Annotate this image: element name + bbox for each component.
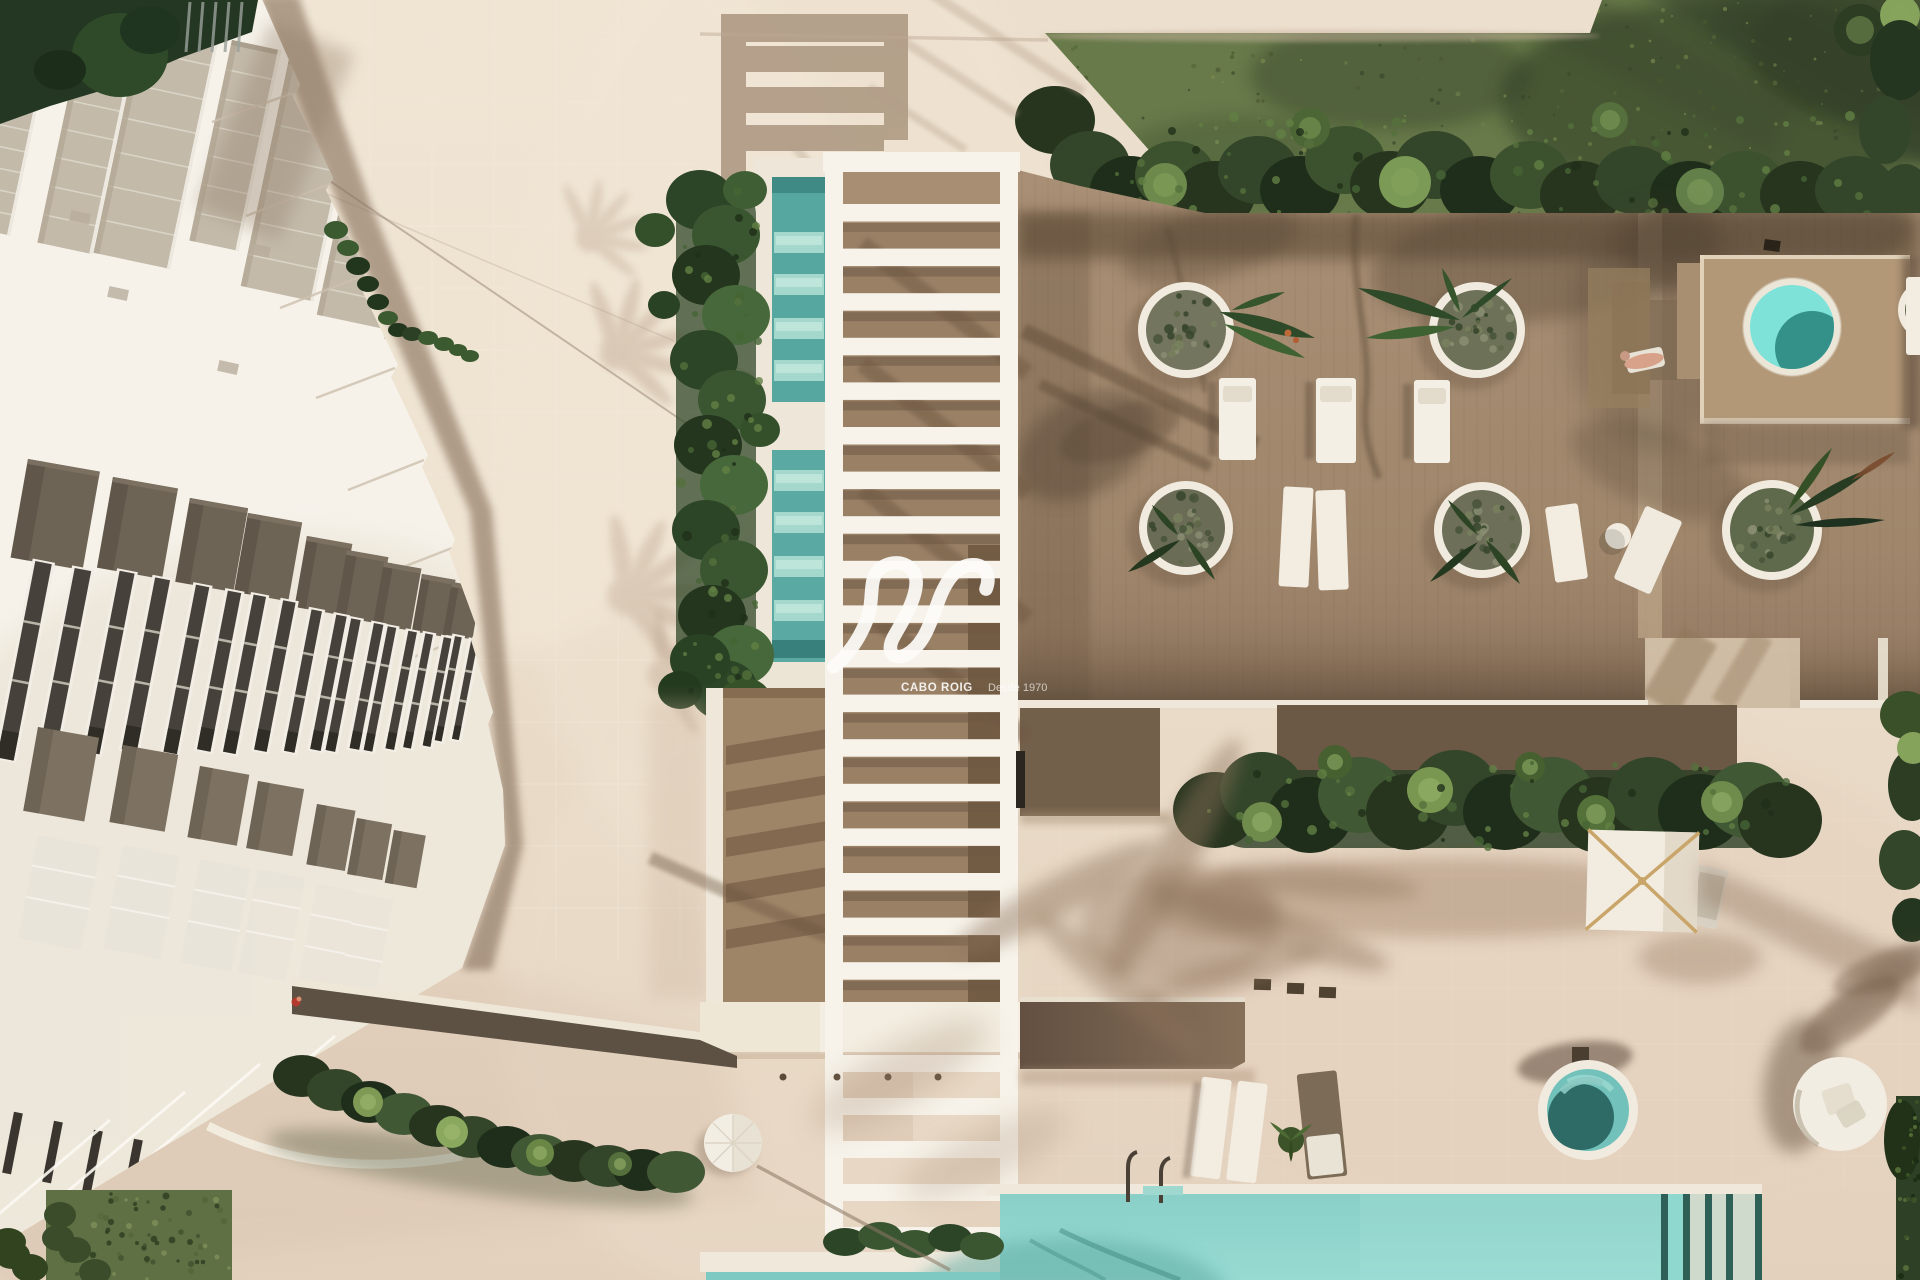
svg-text:Desde 1970: Desde 1970 [988, 682, 1047, 694]
svg-text:CABO ROIG: CABO ROIG [901, 682, 973, 694]
